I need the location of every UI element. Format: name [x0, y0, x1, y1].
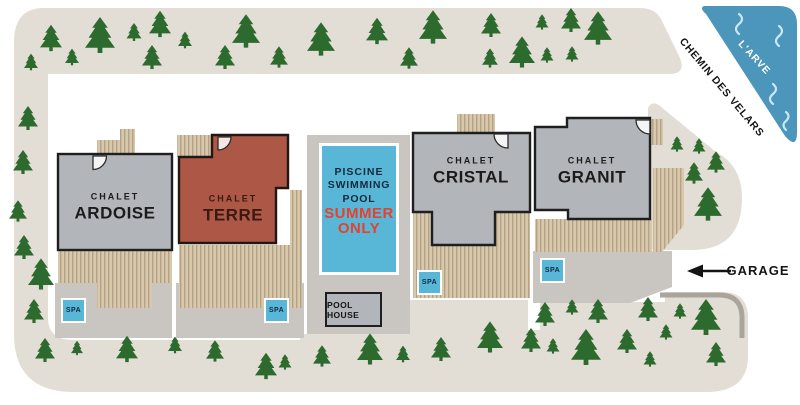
- granit-terrace: [535, 219, 652, 252]
- pool-season-label: ONLY: [338, 221, 380, 236]
- pool-season-label: SUMMER: [324, 206, 394, 221]
- spa-badge-ardoise: SPA: [61, 298, 86, 323]
- spa-badge-granit: SPA: [540, 258, 565, 283]
- pool-label-en: SWIMMING: [328, 178, 390, 192]
- garage-label: GARAGE: [726, 264, 789, 278]
- pool-label-en: POOL: [343, 192, 376, 206]
- spa-label: SPA: [545, 267, 560, 274]
- spa-label: SPA: [422, 279, 437, 286]
- pool-label-fr: PISCINE: [334, 166, 383, 178]
- chalet-name-label: GRANIT: [558, 169, 626, 188]
- pool-house: POOL HOUSE: [325, 292, 382, 327]
- chalet-name-label: CRISTAL: [433, 169, 509, 188]
- ardoise-chimney: [120, 129, 135, 155]
- spa-badge-cristal: SPA: [417, 270, 442, 295]
- chalet-type-label: CHALET: [203, 195, 263, 205]
- chalet-site-map: CHALET ARDOISE CHALET TERRE CHALET CRIST…: [0, 0, 800, 405]
- spa-badge-terre: SPA: [264, 298, 289, 323]
- chalet-name-label: TERRE: [203, 207, 263, 226]
- chalet-type-label: CHALET: [558, 157, 626, 167]
- chalet-granit-label: CHALET GRANIT: [558, 157, 626, 188]
- chalet-name-label: ARDOISE: [75, 205, 156, 224]
- terre-deck-block: [177, 135, 212, 157]
- spa-label: SPA: [66, 307, 81, 314]
- chalet-terre-label: CHALET TERRE: [203, 195, 263, 226]
- top-road-verge: [14, 8, 682, 74]
- cristal-chimney: [457, 114, 495, 133]
- chalet-type-label: CHALET: [75, 193, 156, 203]
- pool-house-label: POOL HOUSE: [327, 300, 380, 320]
- chalet-cristal-label: CHALET CRISTAL: [433, 157, 509, 188]
- chalet-type-label: CHALET: [433, 157, 509, 167]
- left-arrow-icon: [687, 265, 731, 278]
- chalet-ardoise-label: CHALET ARDOISE: [75, 193, 156, 224]
- spa-label: SPA: [269, 307, 284, 314]
- swimming-pool: PISCINE SWIMMING POOL SUMMER ONLY: [319, 143, 399, 275]
- ardoise-chimney: [97, 140, 120, 155]
